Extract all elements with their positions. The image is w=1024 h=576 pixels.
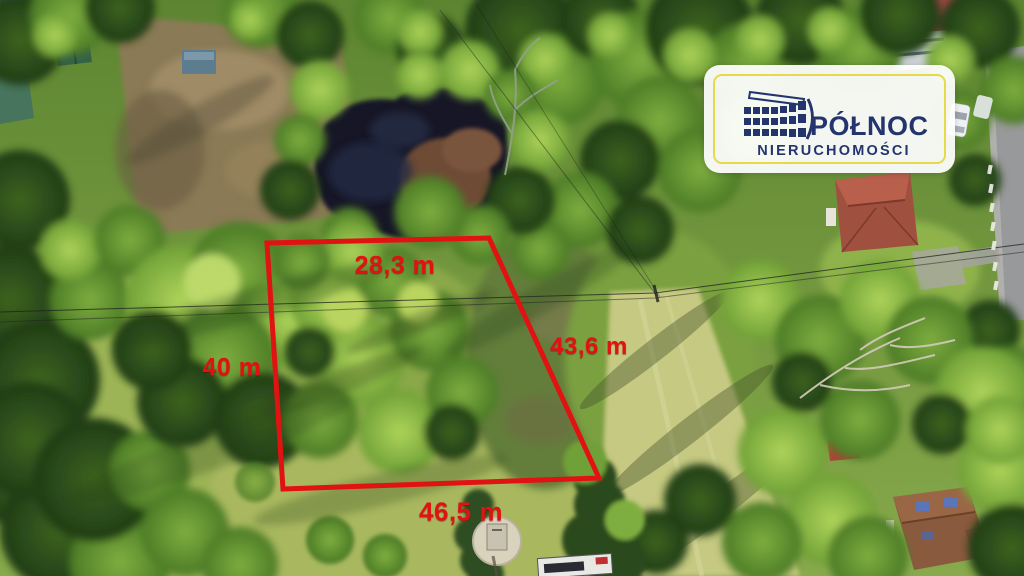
measurement-bottom: 46,5 m bbox=[419, 497, 503, 528]
logo-title: PÓŁNOC bbox=[810, 111, 940, 142]
logo-subtitle: NIERUCHOMOŚCI bbox=[744, 143, 924, 159]
measurement-right: 43,6 m bbox=[550, 333, 628, 361]
building-facade-icon bbox=[742, 87, 814, 143]
measurement-top: 28,3 m bbox=[355, 252, 436, 281]
measurement-left: 40 m bbox=[203, 354, 262, 383]
aerial-listing-photo: 28,3 m 43,6 m 40 m 46,5 m bbox=[0, 0, 1024, 576]
agency-logo-card: PÓŁNOC NIERUCHOMOŚCI bbox=[704, 65, 955, 173]
